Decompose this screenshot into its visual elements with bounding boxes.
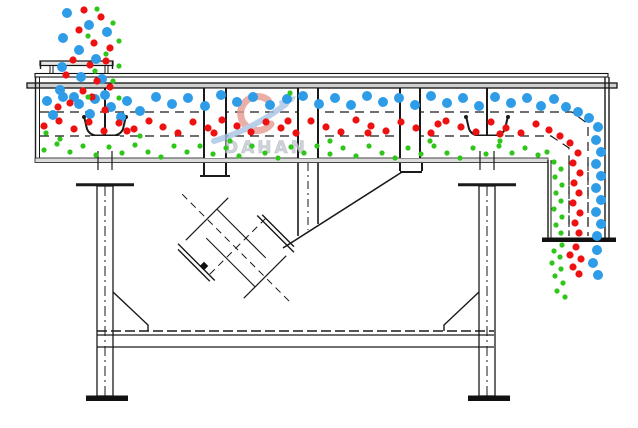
chute-flange [542,238,616,243]
foot-plate-right [468,396,510,402]
support-leg-left [86,186,128,401]
gusset-left [113,292,148,331]
gusset-right [444,292,479,331]
motor-terminal-nub [200,262,208,270]
foot-plate-left [86,396,128,402]
machine-structure [27,61,617,401]
cross-beam [97,292,494,347]
particles-blue [42,8,606,280]
particle-layer [40,6,606,299]
motor-brace-diagonal [283,172,402,248]
machine-drawing: ® DAHAN [0,0,638,428]
vibrating-screen-diagram: ® DAHAN [0,0,638,428]
feed-inlet [40,61,113,75]
vibration-motor [153,165,320,332]
support-leg-right [468,186,510,401]
